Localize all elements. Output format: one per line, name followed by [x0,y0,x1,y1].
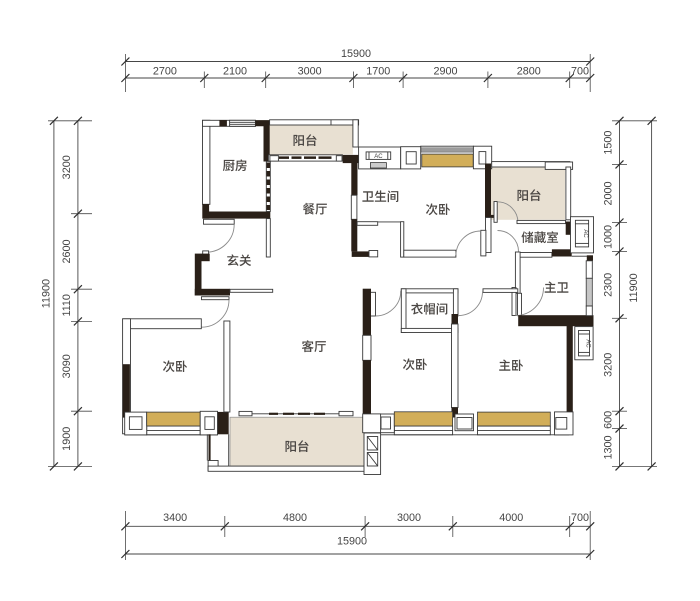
svg-text:1500: 1500 [603,131,615,155]
svg-text:3090: 3090 [61,354,73,378]
svg-text:1700: 1700 [366,66,390,78]
svg-text:1900: 1900 [61,427,73,451]
svg-text:15900: 15900 [341,48,371,60]
svg-text:2100: 2100 [223,66,247,78]
svg-text:700: 700 [571,66,589,78]
svg-text:1000: 1000 [603,225,615,249]
svg-text:2800: 2800 [517,66,541,78]
svg-text:2000: 2000 [603,181,615,205]
svg-text:11900: 11900 [628,273,640,302]
svg-text:1300: 1300 [603,435,615,459]
svg-text:600: 600 [603,411,615,429]
svg-text:3000: 3000 [298,66,322,78]
svg-text:3000: 3000 [397,512,421,524]
svg-text:4000: 4000 [499,512,523,524]
svg-text:3200: 3200 [61,155,73,179]
svg-text:3400: 3400 [163,512,187,524]
svg-text:AC: AC [584,339,590,348]
svg-text:2300: 2300 [603,273,615,297]
svg-text:3200: 3200 [603,353,615,377]
svg-text:2600: 2600 [61,239,73,263]
svg-text:2700: 2700 [153,66,177,78]
svg-text:AC: AC [374,154,383,160]
svg-text:700: 700 [571,512,589,524]
svg-text:1110: 1110 [61,294,73,316]
svg-text:AC: AC [582,229,588,238]
svg-text:15900: 15900 [337,536,367,548]
svg-text:4800: 4800 [283,512,307,524]
svg-text:2900: 2900 [433,66,457,78]
svg-text:11900: 11900 [41,279,53,308]
